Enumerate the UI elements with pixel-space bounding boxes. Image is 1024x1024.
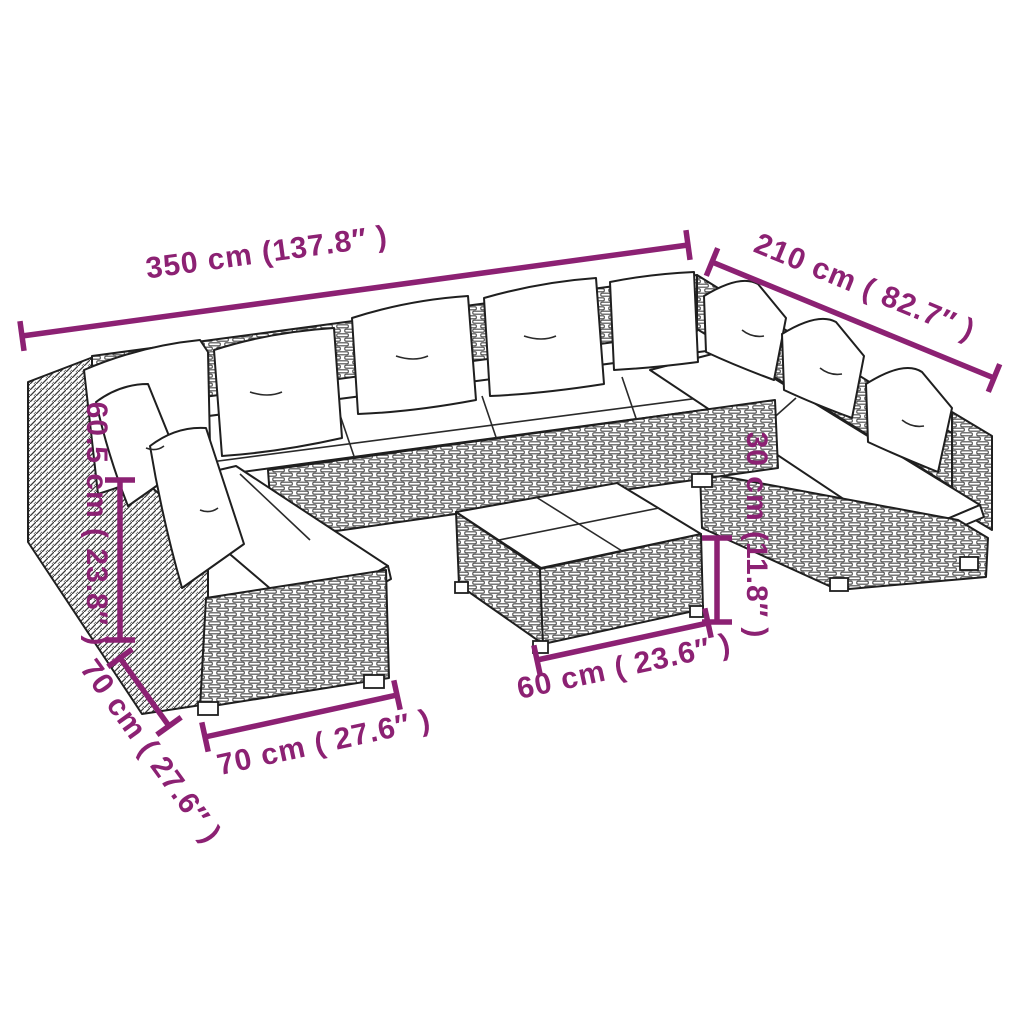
dimension-label-table-height: 30 cm (11.8″ ) [740,432,773,639]
pillow [484,278,604,396]
left-base-rattan [200,570,389,708]
pillow [214,328,342,456]
table-foot [690,606,703,617]
sofa-foot [364,675,384,688]
sofa-foot [198,702,218,715]
pillow [352,296,476,414]
sofa-foot [960,557,978,570]
dimension-diagram-page: 350 cm (137.8″ ) 210 cm ( 82.7″ ) 60.5 c… [0,0,1024,1024]
dimension-label-module-width: 70 cm ( 27.6″ ) [214,703,434,782]
table-foot [455,582,468,593]
product-dimension-illustration: 350 cm (137.8″ ) 210 cm ( 82.7″ ) 60.5 c… [0,0,1024,1024]
dimension-label-overall-width: 350 cm (137.8″ ) [144,220,390,286]
pillow [610,272,698,370]
sofa-foot [830,578,848,591]
sofa-foot [692,474,712,487]
coffee-table [455,483,703,653]
dimension-label-back-height: 60.5 cm ( 23.8″ ) [80,402,113,647]
sofa-line-art [28,272,992,715]
